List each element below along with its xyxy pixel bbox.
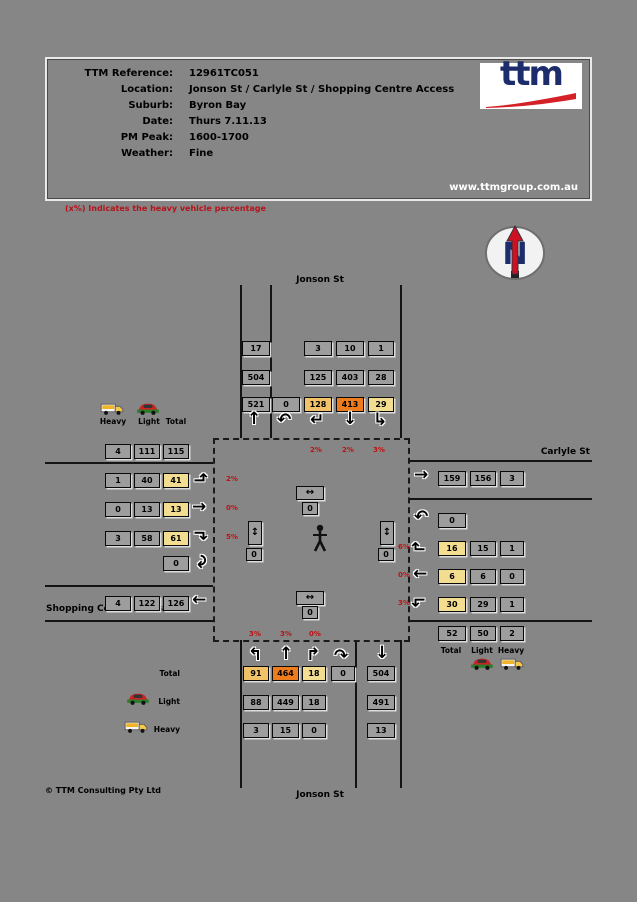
south-right-light-box: 18 (302, 695, 326, 710)
south-uturn-box: 0 (331, 666, 355, 681)
west-right-heavy-pct: 5% (226, 534, 238, 541)
weather-value: Fine (189, 148, 213, 159)
east-right-light-box: 15 (470, 541, 496, 556)
east-through-total-box: 6 (438, 569, 466, 584)
east-left-light-box: 29 (470, 597, 496, 612)
pedestrian-crossing-east-icon: ↕ (380, 521, 394, 545)
lane-divider-line (270, 285, 272, 438)
west-exit-total-box: 126 (163, 596, 189, 611)
lane-divider-line (408, 498, 592, 500)
truck-icon (100, 402, 124, 415)
east-left-turn-arrow-icon: ↰ (412, 595, 429, 609)
north-exit-arrow-icon: ↑ (247, 411, 261, 428)
pedestrian-crossing-west-icon: ↕ (248, 521, 262, 545)
legend-total-label: Total (140, 669, 180, 678)
road-edge-line (408, 460, 592, 462)
west-approach-total-box: 115 (163, 444, 189, 459)
north-exit-heavy-box: 17 (242, 341, 270, 356)
east-exit-heavy-box: 3 (500, 471, 524, 486)
legend-heavy-label: Heavy (496, 646, 526, 655)
west-through-heavy-box: 0 (105, 502, 131, 517)
east-approach-total-box: 52 (438, 626, 466, 641)
header-panel: TTM Reference:12961TC051 Location:Jonson… (45, 57, 592, 201)
north-right-light-box: 28 (368, 370, 394, 385)
car-icon (470, 657, 494, 670)
legend-light-label: Light (152, 697, 180, 706)
south-right-total-box: 18 (302, 666, 326, 681)
legend-total-label: Total (437, 646, 465, 655)
ttm-logo-swoosh-icon (484, 93, 578, 109)
field-label: Suburb: (61, 100, 173, 111)
car-icon (126, 692, 150, 705)
south-left-total-box: 91 (243, 666, 269, 681)
field-label: Date: (61, 116, 173, 127)
south-through-heavy-pct: 3% (280, 631, 292, 638)
north-right-heavy-pct: 3% (373, 447, 385, 454)
pedestrian-crossing-north-icon: ↔ (296, 486, 324, 500)
north-right-turn-arrow-icon: ↳ (373, 412, 387, 429)
header-row: PM Peak:1600-1700 (61, 132, 249, 146)
west-approach-total-light-box: 111 (134, 444, 160, 459)
south-through-heavy-box: 15 (272, 723, 299, 738)
road-edge-line (400, 640, 402, 788)
legend-heavy-label: Heavy (146, 725, 180, 734)
east-through-heavy-box: 0 (500, 569, 524, 584)
west-exit-heavy-box: 4 (105, 596, 131, 611)
west-right-light-box: 58 (134, 531, 160, 546)
header-row: TTM Reference:12961TC051 (61, 68, 259, 82)
west-through-light-box: 13 (134, 502, 160, 517)
west-uturn-arrow-icon: ↷ (191, 554, 208, 568)
west-left-turn-arrow-icon: ↰ (191, 470, 208, 484)
north-exit-light-box: 504 (242, 370, 270, 385)
east-approach-total-light-box: 50 (470, 626, 496, 641)
pedestrian-count-south-box: 0 (302, 606, 318, 619)
header-row: Location:Jonson St / Carlyle St / Shoppi… (61, 84, 454, 98)
east-exit-arrow-icon: → (414, 467, 428, 484)
east-through-heavy-pct: 0% (398, 572, 410, 579)
east-through-arrow-icon: ← (413, 566, 427, 583)
peak-period-value: 1600-1700 (189, 132, 249, 143)
west-uturn-box: 0 (163, 556, 189, 571)
north-compass-icon: N (484, 224, 546, 286)
header-row: Date:Thurs 7.11.13 (61, 116, 267, 130)
south-right-heavy-box: 0 (302, 723, 326, 738)
west-left-light-box: 40 (134, 473, 160, 488)
legend-light-label: Light (468, 646, 496, 655)
east-right-heavy-pct: 6% (398, 544, 410, 551)
south-exit-total-box: 504 (367, 666, 395, 681)
south-through-arrow-icon: ↑ (279, 646, 293, 663)
lane-divider-line (355, 640, 357, 788)
truck-icon (124, 720, 148, 733)
south-left-heavy-box: 3 (243, 723, 269, 738)
west-approach-total-heavy-box: 4 (105, 444, 131, 459)
south-through-total-box: 464 (272, 666, 299, 681)
south-left-light-box: 88 (243, 695, 269, 710)
east-right-turn-arrow-icon: ↱ (412, 539, 429, 553)
street-label-north: Jonson St (283, 275, 357, 285)
legend-total-label: Total (162, 417, 190, 426)
south-right-turn-arrow-icon: ↱ (306, 647, 320, 664)
east-approach-total-heavy-box: 2 (500, 626, 524, 641)
pedestrian-count-east-box: 0 (378, 548, 394, 561)
pedestrian-crossing-south-icon: ↔ (296, 591, 324, 605)
suburb-value: Byron Bay (189, 100, 246, 111)
field-label: PM Peak: (61, 132, 173, 143)
west-right-turn-arrow-icon: ↱ (191, 528, 208, 542)
south-exit-arrow-icon: ↓ (375, 645, 389, 662)
west-left-total-box: 41 (163, 473, 189, 488)
street-label-south: Jonson St (283, 790, 357, 800)
heavy-vehicle-note: (x%) Indicates the heavy vehicle percent… (65, 204, 266, 213)
south-right-heavy-pct: 0% (309, 631, 321, 638)
field-label: Location: (61, 84, 173, 95)
lane-divider-line (45, 585, 213, 587)
north-left-light-box: 125 (304, 370, 332, 385)
west-right-heavy-box: 3 (105, 531, 131, 546)
south-left-heavy-pct: 3% (249, 631, 261, 638)
north-through-heavy-pct: 2% (342, 447, 354, 454)
west-left-heavy-box: 1 (105, 473, 131, 488)
west-through-arrow-icon: → (192, 499, 206, 516)
ttm-logo-text: ttm (480, 54, 582, 94)
south-through-light-box: 449 (272, 695, 299, 710)
pedestrian-count-north-box: 0 (302, 502, 318, 515)
road-edge-line (45, 462, 213, 464)
west-right-total-box: 61 (163, 531, 189, 546)
west-through-heavy-pct: 0% (226, 505, 238, 512)
truck-icon (500, 657, 524, 670)
west-exit-arrow-icon: ← (192, 592, 206, 609)
header-row: Weather:Fine (61, 148, 213, 162)
copyright-text: © TTM Consulting Pty Ltd (45, 786, 161, 795)
south-left-turn-arrow-icon: ↰ (248, 647, 262, 664)
east-through-light-box: 6 (470, 569, 496, 584)
field-label: Weather: (61, 148, 173, 159)
east-left-heavy-box: 1 (500, 597, 524, 612)
road-edge-line (240, 640, 242, 788)
road-edge-line (400, 285, 402, 438)
legend-heavy-label: Heavy (98, 417, 128, 426)
pedestrian-count-west-box: 0 (246, 548, 262, 561)
road-edge-line (408, 620, 592, 622)
east-left-heavy-pct: 3% (398, 600, 410, 607)
website-link[interactable]: www.ttmgroup.com.au (449, 182, 578, 193)
east-uturn-arrow-icon: ↶ (414, 509, 428, 526)
east-left-total-box: 30 (438, 597, 466, 612)
south-exit-heavy-box: 13 (367, 723, 395, 738)
car-icon (136, 402, 160, 415)
west-exit-light-box: 122 (134, 596, 160, 611)
north-right-heavy-box: 1 (368, 341, 394, 356)
traffic-count-report-page: TTM Reference:12961TC051 Location:Jonson… (0, 0, 637, 902)
north-left-heavy-pct: 2% (310, 447, 322, 454)
east-exit-total-box: 159 (438, 471, 466, 486)
north-left-turn-arrow-icon: ↵ (310, 412, 324, 429)
legend-light-label: Light (135, 417, 163, 426)
field-label: TTM Reference: (61, 68, 173, 79)
north-through-light-box: 403 (336, 370, 364, 385)
east-right-heavy-box: 1 (500, 541, 524, 556)
road-edge-line (45, 620, 213, 622)
road-edge-line (240, 285, 242, 438)
south-exit-light-box: 491 (367, 695, 395, 710)
pedestrian-icon (311, 524, 329, 554)
north-through-heavy-box: 10 (336, 341, 364, 356)
east-right-total-box: 16 (438, 541, 466, 556)
north-left-heavy-box: 3 (304, 341, 332, 356)
location-value: Jonson St / Carlyle St / Shopping Centre… (189, 84, 454, 95)
east-exit-light-box: 156 (470, 471, 496, 486)
west-through-total-box: 13 (163, 502, 189, 517)
west-left-heavy-pct: 2% (226, 476, 238, 483)
street-label-east: Carlyle St (530, 447, 590, 457)
south-uturn-arrow-icon: ↷ (334, 648, 348, 665)
date-value: Thurs 7.11.13 (189, 116, 267, 127)
ttm-logo: ttm (480, 63, 582, 109)
header-row: Suburb:Byron Bay (61, 100, 246, 114)
ttm-reference-value: 12961TC051 (189, 68, 259, 79)
north-uturn-arrow-icon: ↶ (277, 412, 291, 429)
east-uturn-box: 0 (438, 513, 466, 528)
north-through-arrow-icon: ↓ (343, 411, 357, 428)
